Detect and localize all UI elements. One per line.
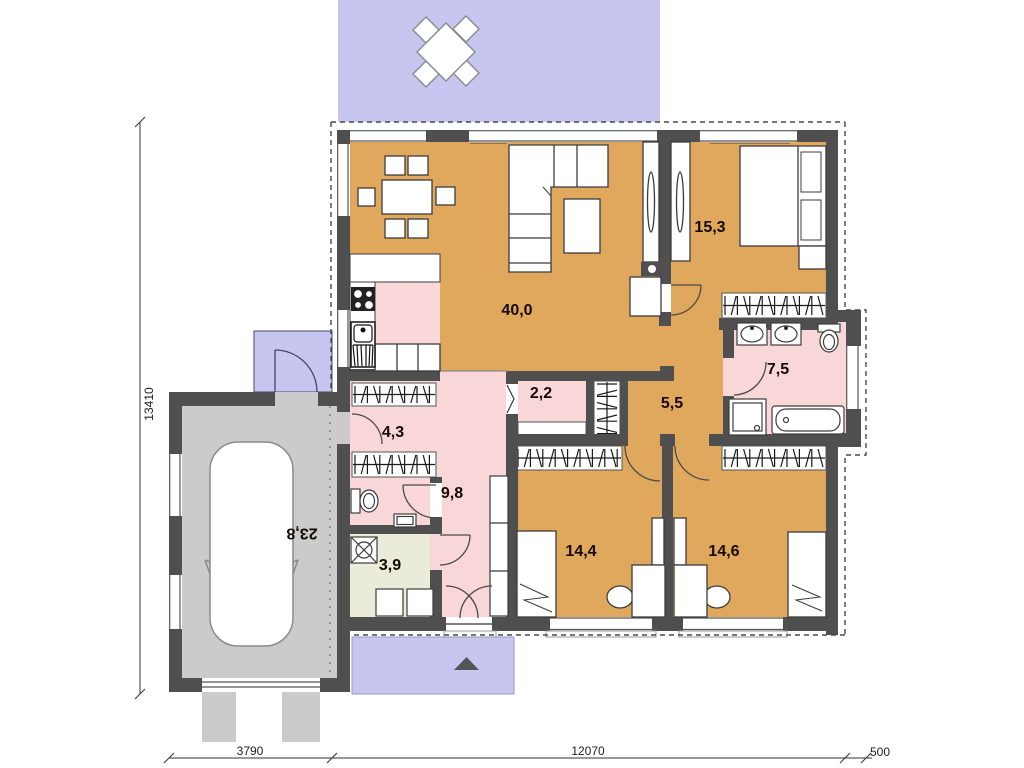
svg-text:13410: 13410 bbox=[142, 387, 156, 421]
svg-text:15,3: 15,3 bbox=[694, 219, 725, 236]
svg-text:500: 500 bbox=[870, 745, 890, 759]
svg-text:3790: 3790 bbox=[237, 744, 264, 758]
svg-text:14,4: 14,4 bbox=[565, 543, 596, 560]
svg-text:4,3: 4,3 bbox=[382, 424, 404, 441]
svg-text:40,0: 40,0 bbox=[501, 302, 532, 319]
svg-text:23,8: 23,8 bbox=[286, 525, 317, 542]
svg-text:14,6: 14,6 bbox=[708, 543, 739, 560]
svg-text:5,5: 5,5 bbox=[661, 395, 683, 412]
svg-text:12070: 12070 bbox=[571, 744, 605, 758]
svg-text:2,2: 2,2 bbox=[530, 385, 552, 402]
svg-text:7,5: 7,5 bbox=[767, 361, 789, 378]
svg-text:9,8: 9,8 bbox=[441, 485, 463, 502]
svg-text:3,9: 3,9 bbox=[379, 557, 401, 574]
